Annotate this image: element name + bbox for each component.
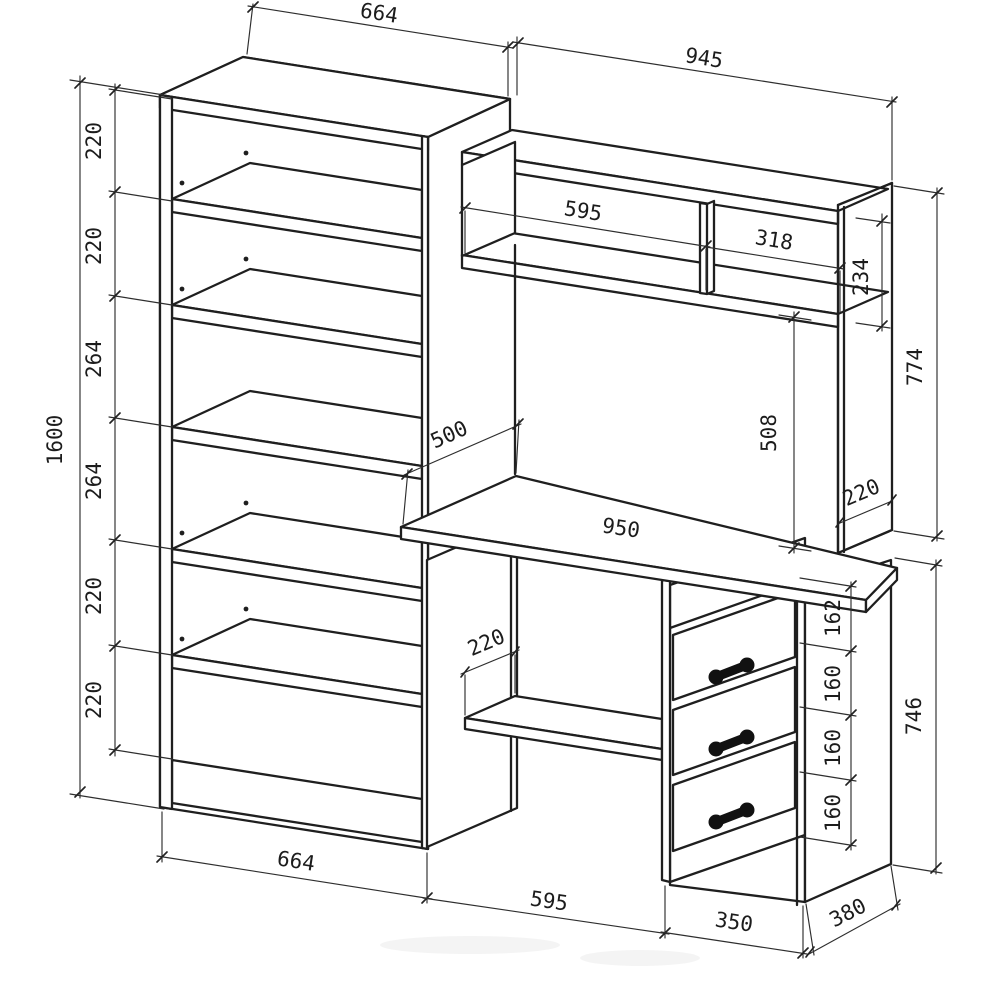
dim-label: 746 [902,697,926,735]
dim-label: 1600 [43,415,67,466]
dim-label: 350 [714,907,755,936]
dim-label: 220 [82,227,106,265]
dim-label: 774 [903,348,927,386]
dim-label: 595 [562,196,603,226]
furniture-drawing-page: 664 945 1600 [0,0,1000,1000]
dim-label: 264 [82,340,106,378]
dim-label: 945 [683,43,724,73]
dim-label: 160 [821,665,845,703]
dim-label: 380 [825,893,870,932]
hutch-top-shelf [462,130,888,224]
dim-label: 508 [757,414,781,452]
dim-label: 664 [275,846,316,876]
desk-wall-unit-blueprint: 664 945 1600 [0,0,1000,1000]
dim-label: 664 [358,0,399,28]
dim-label: 500 [427,416,471,453]
dim-label: 318 [753,225,794,255]
dim-label: 160 [821,729,845,767]
hutch-middle-shelf [462,233,888,327]
dim-drawer-unit-width: 350 [661,906,808,958]
dim-bookshelf-sections: 220 220 264 264 220 220 [82,84,172,759]
dim-hutch-panel-height: 774 [894,186,944,541]
dim-drawer-unit-height: 746 [893,558,942,874]
dim-label: 160 [821,794,845,832]
dim-label: 234 [849,258,873,296]
dim-label: 162 [821,599,845,637]
dim-shelf-to-desktop: 508 [757,312,811,553]
dim-label: 220 [82,681,106,719]
dim-kneehole-width: 595 [423,886,670,938]
dim-label: 264 [82,462,106,500]
dim-label: 220 [82,122,106,160]
dim-label: 595 [529,886,570,915]
dim-label: 220 [82,577,106,615]
hutch-left-panel [462,142,515,474]
desk-support-panel [427,521,517,847]
watermark-smudge [380,936,700,966]
